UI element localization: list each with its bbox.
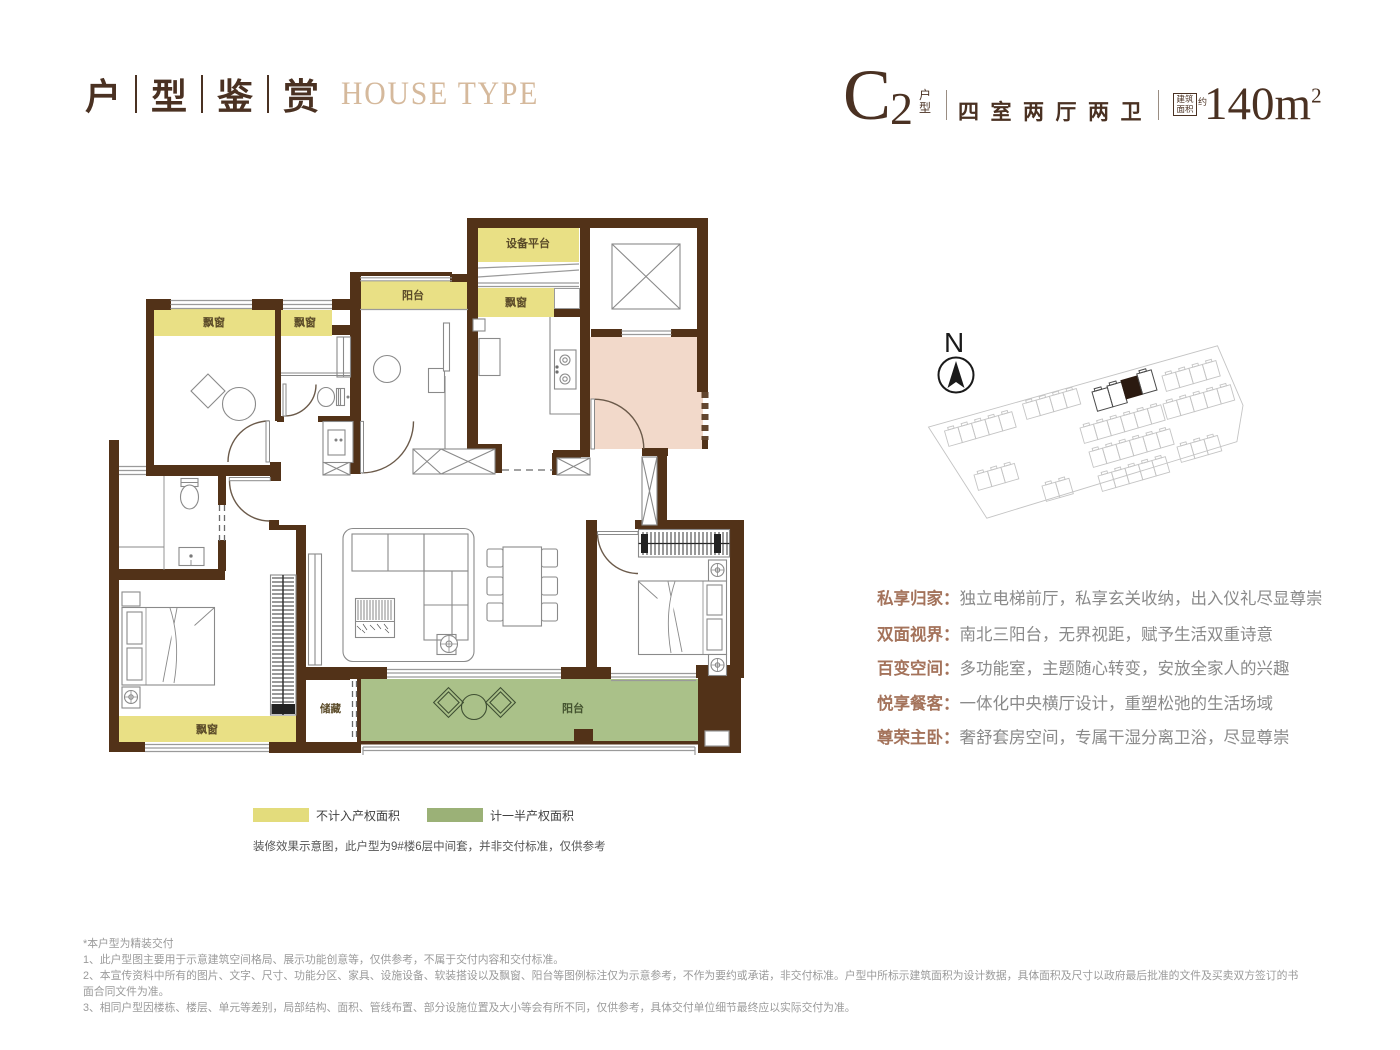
svg-text:飘窗: 飘窗 <box>196 722 218 736</box>
svg-text:阳台: 阳台 <box>402 288 424 302</box>
svg-text:飘窗: 飘窗 <box>294 315 316 329</box>
svg-text:储藏: 储藏 <box>320 702 341 715</box>
svg-text:飘窗: 飘窗 <box>505 295 527 309</box>
svg-text:设备平台: 设备平台 <box>506 236 550 250</box>
svg-text:阳台: 阳台 <box>562 701 584 715</box>
svg-text:飘窗: 飘窗 <box>203 315 225 329</box>
svg-text:N: N <box>944 327 964 358</box>
